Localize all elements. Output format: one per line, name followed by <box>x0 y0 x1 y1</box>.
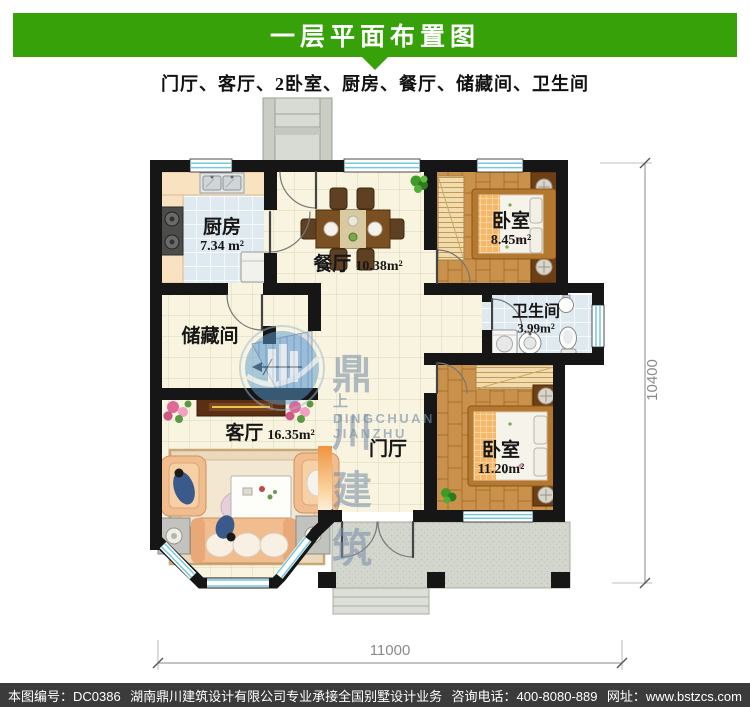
watermark-logo-icon <box>240 326 324 410</box>
window-bedroom-bottom <box>463 511 533 522</box>
coffee-table <box>231 476 291 518</box>
label-foyer: 门厅 <box>369 439 407 461</box>
front-porch <box>318 522 570 614</box>
label-storage: 储藏间 <box>181 326 238 348</box>
window-kitchen <box>190 159 232 172</box>
back-steps <box>263 98 332 164</box>
footer-serial: 本图编号：DC0386 <box>8 686 121 705</box>
stove-icon <box>161 207 183 255</box>
sofa <box>191 513 297 563</box>
dimension-right: 10400 <box>600 158 661 588</box>
label-living: 客厅 16.35m² <box>225 423 314 445</box>
label-dining: 餐厅 10.38m² <box>313 254 402 276</box>
banner-pointer-icon <box>362 57 388 70</box>
kitchen-sink-icon <box>200 173 244 193</box>
label-bedroom-top: 卧室 8.45m² <box>491 211 531 249</box>
room-list-subtitle: 门厅、客厅、2卧室、厨房、餐厅、储藏间、卫生间 <box>0 70 750 96</box>
label-kitchen: 厨房 7.34 m² <box>200 217 244 255</box>
title-banner: 一层平面布置图 <box>13 13 737 57</box>
footer-bar: 本图编号：DC0386 湖南鼎川建筑设计有限公司专业承接全国别墅设计业务 咨询电… <box>0 683 750 707</box>
footer-phone: 咨询电话：400-8080-889 <box>452 686 598 705</box>
floorplan-page: 一层平面布置图 门厅、客厅、2卧室、厨房、餐厅、储藏间、卫生间 <box>0 0 750 707</box>
armchair-right <box>294 453 339 513</box>
bedroom-bottom-furniture <box>468 365 561 506</box>
page-title: 一层平面布置图 <box>270 17 480 53</box>
floor-plan-drawing: 11000 10400 <box>0 0 750 707</box>
window-bathroom <box>592 305 604 347</box>
label-bedroom-bottom: 卧室 11.20m² <box>478 440 525 478</box>
dim-right-value: 10400 <box>644 359 661 401</box>
armchair-left <box>161 456 206 516</box>
label-bathroom: 卫生间 3.99m² <box>512 303 560 336</box>
footer-website: 网址：www.bstzcs.com <box>607 686 742 705</box>
dim-bottom-value: 11000 <box>370 642 411 659</box>
foyer-accent-pillar <box>318 446 332 510</box>
dimension-bottom: 11000 <box>153 640 627 670</box>
window-bedroom-top <box>477 159 523 172</box>
footer-company: 湖南鼎川建筑设计有限公司专业承接全国别墅设计业务 <box>130 686 442 705</box>
window-dining <box>344 159 420 172</box>
toilet-icon <box>560 327 577 356</box>
